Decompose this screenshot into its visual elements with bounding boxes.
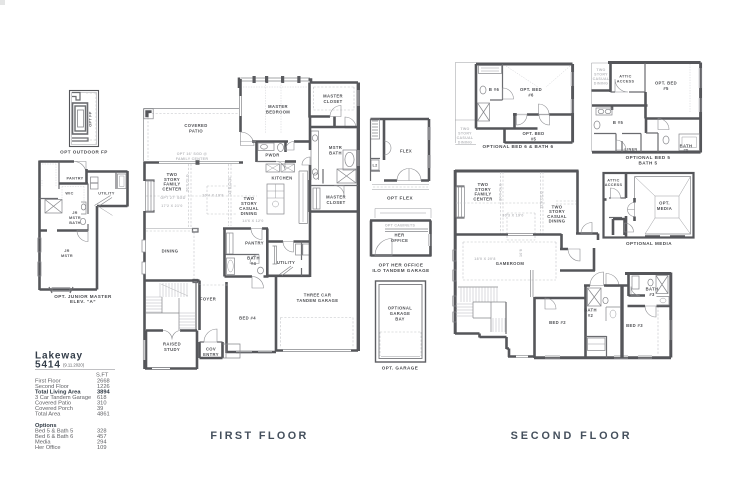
svg-text:OPT 27' SGD: OPT 27' SGD xyxy=(160,196,185,200)
svg-text:STORY: STORY xyxy=(458,132,472,136)
svg-text:UTILITY: UTILITY xyxy=(98,192,115,196)
svg-text:OPT HER OFFICE: OPT HER OFFICE xyxy=(379,263,424,268)
svg-text:17'2 X 21'0: 17'2 X 21'0 xyxy=(161,204,182,208)
svg-text:STUDY: STUDY xyxy=(164,347,180,352)
svg-text:CENTER: CENTER xyxy=(473,196,492,201)
svg-text:#2: #2 xyxy=(588,313,594,318)
svg-text:OPT. BED: OPT. BED xyxy=(522,131,544,136)
svg-text:TWO: TWO xyxy=(460,127,469,131)
svg-text:BATH: BATH xyxy=(69,221,80,225)
svg-text:BATH: BATH xyxy=(329,151,342,156)
svg-text:#5: #5 xyxy=(663,86,669,91)
svg-text:OPT CABINETS: OPT CABINETS xyxy=(385,224,416,228)
svg-text:RAISED: RAISED xyxy=(163,342,181,347)
svg-text:OPT 16' SGD @: OPT 16' SGD @ xyxy=(177,152,208,156)
svg-text:ATTIC: ATTIC xyxy=(619,75,631,79)
svg-text:MSTR: MSTR xyxy=(69,216,81,220)
svg-text:OPT FP: OPT FP xyxy=(89,111,93,127)
svg-text:BEDROOM: BEDROOM xyxy=(266,110,290,115)
svg-text:MEDIA: MEDIA xyxy=(657,206,672,211)
svg-text:OPT FLEX: OPT FLEX xyxy=(387,196,414,201)
svg-text:CLOSET: CLOSET xyxy=(323,99,342,104)
svg-text:BATH: BATH xyxy=(247,256,260,261)
svg-text:CASUAL: CASUAL xyxy=(593,77,610,81)
svg-text:ILO TANDEM GARAGE: ILO TANDEM GARAGE xyxy=(372,268,429,273)
svg-text:30'3 X 19'0: 30'3 X 19'0 xyxy=(502,214,523,218)
svg-text:B #5: B #5 xyxy=(613,120,624,125)
svg-text:FAMILY CENTER: FAMILY CENTER xyxy=(176,157,209,161)
svg-text:#6: #6 xyxy=(528,93,534,98)
svg-text:CENTER: CENTER xyxy=(162,186,181,191)
svg-text:DINING: DINING xyxy=(549,219,566,224)
svg-text:OPTIONAL MEDIA: OPTIONAL MEDIA xyxy=(626,241,672,246)
svg-text:18'0 X 20'8: 18'0 X 20'8 xyxy=(474,257,495,261)
svg-text:WIC: WIC xyxy=(65,192,73,196)
svg-text:DINING: DINING xyxy=(162,249,179,254)
svg-text:ELEV. “A”: ELEV. “A” xyxy=(70,299,96,304)
svg-text:PATIO: PATIO xyxy=(189,129,203,134)
svg-text:OFFICE: OFFICE xyxy=(391,238,408,243)
svg-text:#4: #4 xyxy=(251,261,257,266)
svg-text:OPT. BED: OPT. BED xyxy=(655,81,677,86)
svg-text:FIRST FLOOR: FIRST FLOOR xyxy=(210,430,308,442)
svg-text:DINING: DINING xyxy=(458,141,472,145)
svg-text:Her Office: Her Office xyxy=(35,445,61,451)
svg-text:ACCESS: ACCESS xyxy=(617,80,635,84)
svg-text:MASTER: MASTER xyxy=(326,195,346,200)
svg-text:16'8: 16'8 xyxy=(519,249,523,257)
svg-text:14'6 X 12'0: 14'6 X 12'0 xyxy=(242,219,263,223)
svg-text:MSTR: MSTR xyxy=(329,145,342,150)
svg-text:FLEX: FLEX xyxy=(400,149,412,154)
svg-text:HER: HER xyxy=(395,233,405,238)
svg-text:BED #3: BED #3 xyxy=(626,323,643,328)
svg-text:COVERED: COVERED xyxy=(184,123,207,128)
svg-text:STORY: STORY xyxy=(594,73,608,77)
svg-text:5414: 5414 xyxy=(35,360,61,371)
svg-text:DINING: DINING xyxy=(594,82,608,86)
svg-text:BED #4: BED #4 xyxy=(239,316,256,321)
svg-text:BED #2: BED #2 xyxy=(549,320,566,325)
svg-text:20'4 X 19'8: 20'4 X 19'8 xyxy=(202,194,223,198)
svg-text:OPT.: OPT. xyxy=(659,201,670,206)
svg-text:OPTIONAL: OPTIONAL xyxy=(388,306,413,311)
svg-text:20'0 CLG: 20'0 CLG xyxy=(186,174,190,192)
svg-text:4861: 4861 xyxy=(97,412,110,418)
svg-text:BATH: BATH xyxy=(584,308,597,313)
svg-text:COV: COV xyxy=(206,347,216,352)
svg-text:CASUAL: CASUAL xyxy=(457,136,474,140)
svg-text:TANDEM GARAGE: TANDEM GARAGE xyxy=(297,298,339,303)
svg-text:12'8 CLG: 12'8 CLG xyxy=(228,177,232,195)
svg-text:PANTRY: PANTRY xyxy=(245,241,264,246)
svg-text:ATTIC: ATTIC xyxy=(607,179,619,183)
svg-text:OPT. BED: OPT. BED xyxy=(520,87,542,92)
svg-text:12'8 CLG: 12'8 CLG xyxy=(540,191,544,209)
svg-text:MASTER: MASTER xyxy=(323,94,343,99)
svg-text:20'0 CLG: 20'0 CLG xyxy=(499,183,503,201)
svg-text:UTILITY: UTILITY xyxy=(277,260,295,265)
svg-text:OPT OUTDOOR FP: OPT OUTDOOR FP xyxy=(60,150,108,155)
svg-text:GAMEROOM: GAMEROOM xyxy=(496,261,525,266)
svg-text:SECOND FLOOR: SECOND FLOOR xyxy=(511,430,633,442)
svg-text:#5: #5 xyxy=(531,136,537,141)
svg-text:OPTIONAL BED 6 & BATH 6: OPTIONAL BED 6 & BATH 6 xyxy=(483,144,554,149)
svg-text:THREE CAR: THREE CAR xyxy=(304,293,332,298)
svg-text:GARAGE: GARAGE xyxy=(390,311,410,316)
svg-text:PWDR: PWDR xyxy=(265,153,279,158)
svg-text:TWO: TWO xyxy=(596,68,605,72)
svg-text:L2: L2 xyxy=(372,164,377,168)
svg-text:MSTR: MSTR xyxy=(61,254,73,258)
svg-text:ACCESS: ACCESS xyxy=(605,183,623,187)
svg-text:ENTRY: ENTRY xyxy=(203,352,219,357)
svg-text:#3: #3 xyxy=(649,292,655,297)
svg-text:109: 109 xyxy=(97,445,107,451)
svg-text:(9.11.2020): (9.11.2020) xyxy=(63,363,85,368)
svg-text:JR: JR xyxy=(72,211,77,215)
svg-text:PANTRY: PANTRY xyxy=(67,177,84,181)
svg-text:Total Area: Total Area xyxy=(35,412,61,418)
svg-text:BATH 5: BATH 5 xyxy=(639,161,658,166)
svg-text:KITCHEN: KITCHEN xyxy=(271,176,292,181)
svg-text:CLOSET: CLOSET xyxy=(326,200,345,205)
svg-text:MASTER: MASTER xyxy=(268,104,288,109)
svg-text:FOYER: FOYER xyxy=(200,297,216,302)
svg-text:BAY: BAY xyxy=(395,317,405,322)
svg-text:B #6: B #6 xyxy=(489,87,500,92)
svg-text:JR: JR xyxy=(64,249,69,253)
svg-text:OPTIONAL BED 5: OPTIONAL BED 5 xyxy=(626,155,671,160)
svg-text:OPT. GARAGE: OPT. GARAGE xyxy=(382,366,419,371)
svg-text:DINING: DINING xyxy=(241,211,258,216)
svg-text:BATH: BATH xyxy=(646,287,659,292)
svg-text:LINEN: LINEN xyxy=(625,148,638,152)
